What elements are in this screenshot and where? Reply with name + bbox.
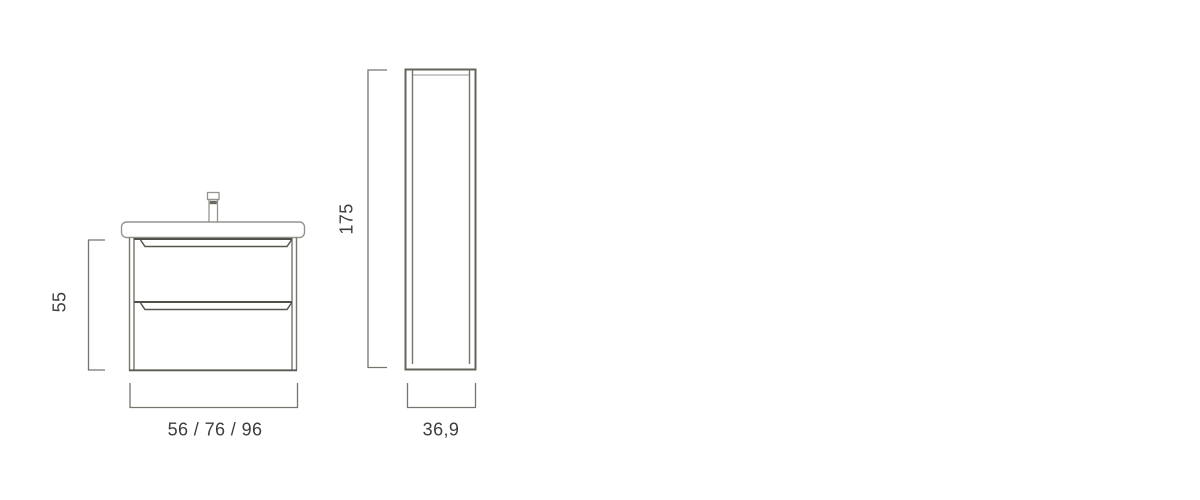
vanity-width-dimension-bracket bbox=[130, 383, 298, 408]
column-width-dimension-bracket bbox=[408, 383, 476, 408]
drawer-bottom bbox=[134, 302, 292, 310]
tall-cabinet-side-view bbox=[368, 70, 476, 408]
column-width-label: 36,9 bbox=[423, 420, 460, 441]
tall-cabinet-body bbox=[406, 70, 476, 370]
vanity-front-view bbox=[89, 193, 305, 408]
drawer-bottom-handle-groove bbox=[141, 303, 292, 310]
column-height-label: 175 bbox=[337, 203, 358, 234]
vanity-height-label: 55 bbox=[50, 292, 71, 313]
vanity-height-dimension-bracket bbox=[89, 240, 106, 370]
drawer-top bbox=[134, 239, 292, 247]
vanity-cabinet-sides bbox=[130, 238, 297, 371]
vanity-width-label: 56 / 76 / 96 bbox=[168, 420, 263, 441]
faucet-icon bbox=[208, 193, 220, 223]
technical-drawing-canvas: 55 56 / 76 / 96 175 36,9 bbox=[0, 0, 1200, 500]
drawer-top-handle-groove bbox=[141, 240, 292, 247]
washbasin bbox=[122, 222, 305, 238]
column-height-dimension-bracket bbox=[368, 70, 387, 368]
